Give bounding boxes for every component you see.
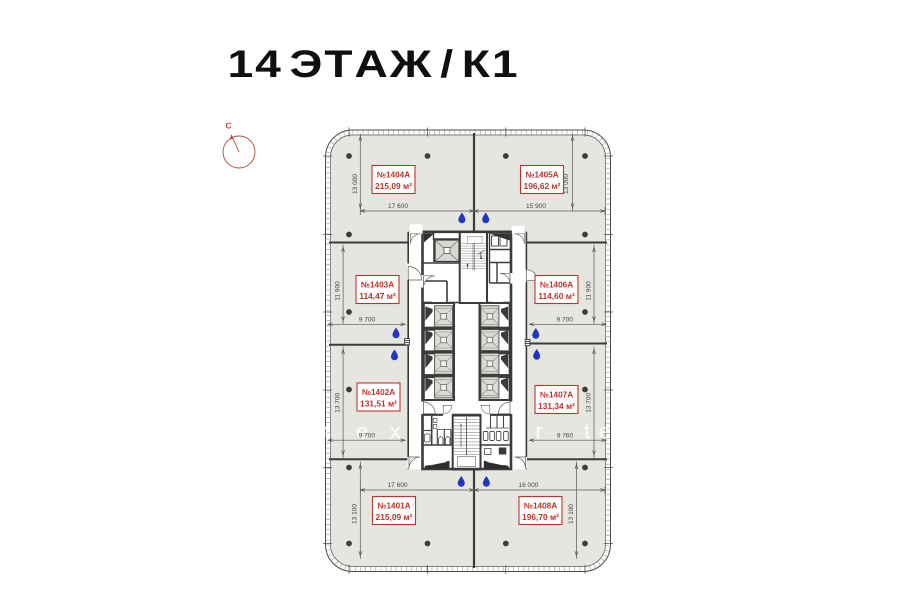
svg-text:9 760: 9 760: [557, 432, 574, 439]
svg-text:11 900: 11 900: [335, 281, 342, 301]
svg-text:17 600: 17 600: [388, 482, 408, 489]
svg-text:№1404А: №1404А: [377, 171, 410, 180]
svg-text:9 700: 9 700: [359, 432, 376, 439]
svg-text:17 600: 17 600: [388, 203, 408, 210]
svg-text:№1402А: №1402А: [362, 388, 395, 397]
svg-text:№1401А: №1401А: [377, 502, 410, 511]
svg-text:215,09 м²: 215,09 м²: [376, 512, 413, 522]
svg-text:131,34 м²: 131,34 м²: [538, 401, 575, 411]
svg-text:114,60 м²: 114,60 м²: [538, 291, 575, 301]
svg-text:13 700: 13 700: [335, 392, 342, 412]
svg-text:№1408А: №1408А: [524, 502, 557, 511]
svg-text:15 900: 15 900: [526, 203, 546, 210]
svg-text:196,62 м²: 196,62 м²: [524, 181, 561, 191]
svg-text:196,70 м²: 196,70 м²: [522, 512, 559, 522]
svg-text:№1405А: №1405А: [525, 171, 558, 180]
svg-text:114,47 м²: 114,47 м²: [359, 291, 396, 301]
svg-text:№1407А: №1407А: [540, 391, 573, 400]
svg-text:13 100: 13 100: [352, 504, 359, 524]
svg-text:16 000: 16 000: [518, 482, 538, 489]
svg-text:№1403А: №1403А: [361, 281, 394, 290]
svg-text:№1406А: №1406А: [540, 281, 573, 290]
svg-text:11 900: 11 900: [585, 281, 592, 301]
svg-text:215,09 м²: 215,09 м²: [375, 181, 412, 191]
svg-text:131,51 м²: 131,51 м²: [360, 399, 397, 409]
svg-text:9 700: 9 700: [557, 317, 574, 324]
svg-text:13 700: 13 700: [585, 392, 592, 412]
svg-text:9 700: 9 700: [359, 317, 376, 324]
svg-text:13 100: 13 100: [568, 504, 575, 524]
svg-text:13 000: 13 000: [352, 174, 359, 194]
